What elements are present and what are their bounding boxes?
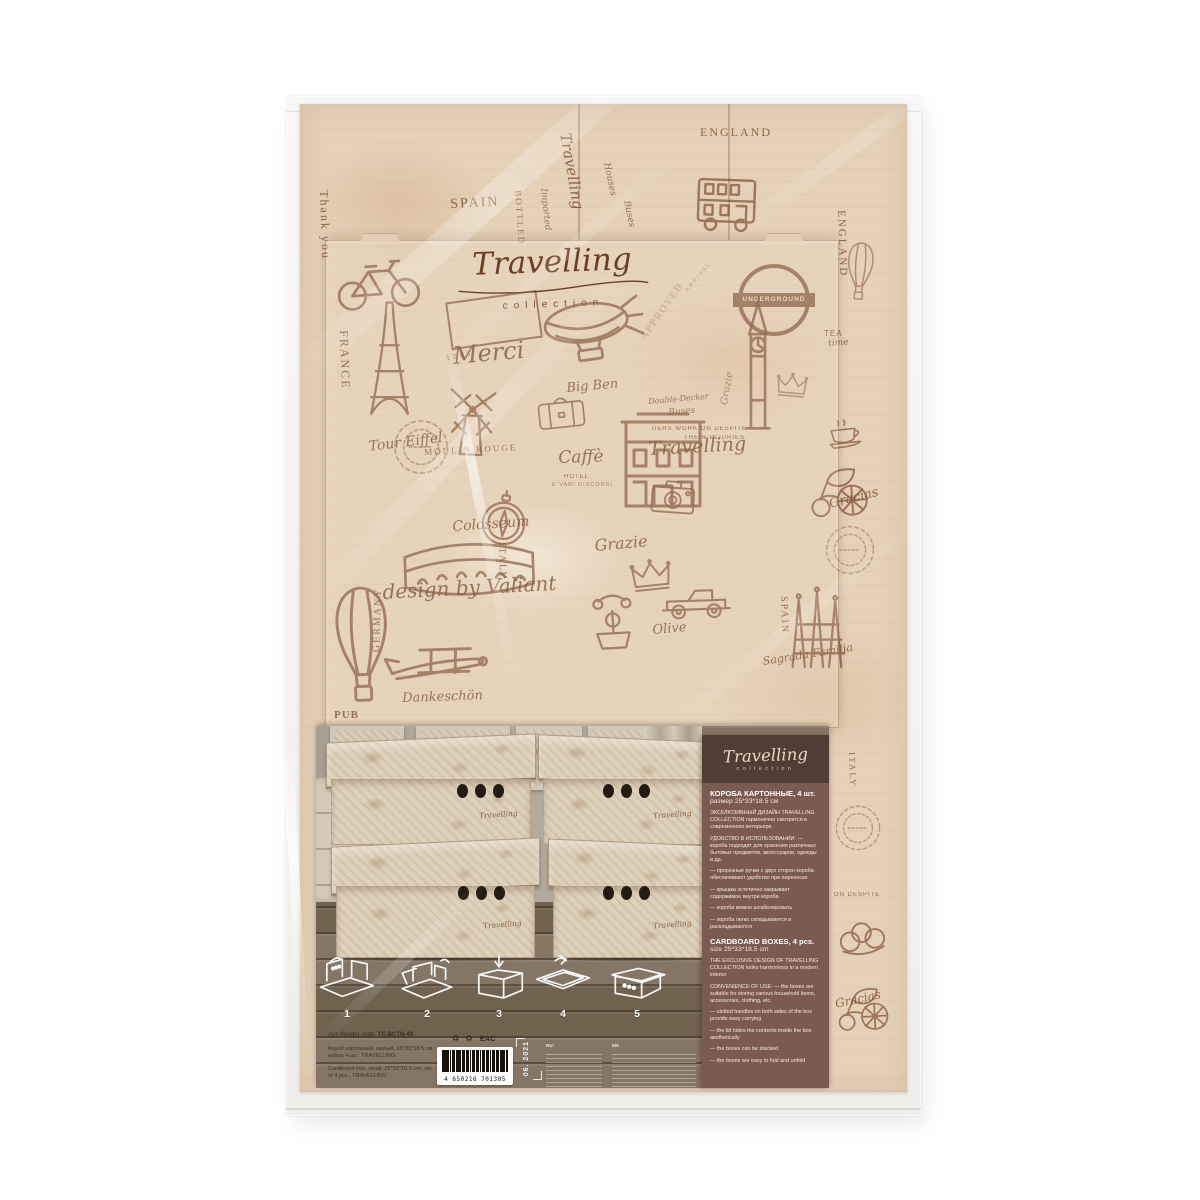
label-band: Travelling (316, 726, 829, 1088)
panel-paragraph: УДОБСТВО В ИСПОЛЬЗОВАНИИ: — короба подхо… (710, 836, 821, 864)
panel-body: КОРОБА КАРТОННЫЕ, 4 шт. размер 25*33*18.… (702, 783, 829, 1073)
handle-hole-icon (603, 784, 614, 798)
step-number: 3 (468, 1008, 530, 1020)
interior-photo-inset: Travelling (316, 726, 702, 961)
description-en: Cardboard box, small, 25*33*18.5 cm, set… (328, 1066, 434, 1081)
panel-paragraph: — короба можно штабелировать (710, 905, 821, 912)
handle-hole-icon (493, 784, 504, 798)
handle-hole-icon (639, 886, 650, 900)
fineprint-en: EN: (612, 1034, 696, 1090)
assembly-step-2-icon (396, 952, 458, 1002)
panel-paragraphs-en: THE EXCLUSIVE DESIGN OF TRAVELLING COLLE… (710, 958, 821, 1065)
box-brand-label: Travelling (483, 919, 522, 931)
cardboard-box: Travelling (543, 738, 702, 845)
assembly-step-4-icon (532, 952, 594, 1002)
box-brand-label: Travelling (653, 809, 692, 821)
fineprint-ru: RU: (546, 1034, 602, 1090)
vendor-code: TC-BCTN-4S (378, 1032, 414, 1038)
panel-paragraph: THE EXCLUSIVE DESIGN OF TRAVELLING COLLE… (710, 958, 821, 979)
pattern-word: Houses (601, 162, 617, 197)
pattern-word: ON DESPITE (834, 892, 880, 898)
panel-size-ru: размер 25*33*18.5 см (710, 798, 821, 806)
fineprint-text-lines (612, 1054, 696, 1090)
handle-holes (458, 886, 505, 900)
assembly-step-1: 1 (316, 952, 378, 1020)
cardboard-box: Travelling (336, 842, 535, 958)
pattern-word: ENGLAND (700, 126, 772, 138)
cardboard-box: Travelling (553, 842, 702, 958)
fineprint-ru-label: RU: (546, 1043, 554, 1048)
fold-seam (728, 104, 730, 240)
handle-hole-icon (476, 886, 487, 900)
handle-hole-icon (494, 886, 505, 900)
handle-tab (356, 233, 404, 242)
vendor-line: Арт./Vendor code: TC-BCTN-4S (328, 1032, 414, 1038)
assembly-step-2: 2 (396, 952, 458, 1020)
panel-paragraph: — короба легко складываются и раскладыва… (710, 917, 821, 931)
barcode-bars-icon (442, 1050, 508, 1072)
panel-paragraph: — the boxes can be stacked (710, 1046, 821, 1053)
step-number: 2 (396, 1008, 458, 1020)
plastic-package: Thank youSPAINTravellingBOTTLEDImportedH… (286, 96, 921, 1116)
panel-paragraph: CONVENIENCE OF USE: — the boxes are suit… (710, 984, 821, 1005)
plastic-bottom-fold (286, 1108, 921, 1110)
handle-hole-icon (621, 784, 632, 798)
panel-title-en: CARDBOARD BOXES, 4 pcs. (710, 937, 821, 946)
date-stamp-block: 06. 2021 (516, 1038, 542, 1080)
panel-brand-logo: Travelling collection (702, 735, 829, 783)
panel-paragraphs-ru: ЭКСКЛЮЗИВНЫЙ ДИЗАЙН TRAVELLING COLLECTIO… (710, 810, 821, 931)
patterned-cardboard-sheet: Thank youSPAINTravellingBOTTLEDImportedH… (300, 104, 907, 1092)
cardboard-box: Travelling (331, 738, 531, 845)
panel-paragraph: — slotted handles on both sides of the b… (710, 1009, 821, 1023)
barcode: 4 650216 701305 (437, 1047, 513, 1085)
pattern-word: BOTTLED (513, 190, 526, 245)
pattern-word: SPAIN (450, 195, 500, 212)
assembly-step-3: 3 (468, 952, 530, 1020)
product-packshot: Thank youSPAINTravellingBOTTLEDImportedH… (0, 0, 1200, 1200)
assembly-step-3-icon (468, 952, 530, 1002)
handle-holes (603, 784, 650, 798)
handle-hole-icon (458, 886, 469, 900)
panel-paragraph: — прорезные ручки с двух сторон короба о… (710, 868, 821, 882)
panel-brand-script: Travelling (723, 745, 808, 767)
pattern-word: Travelling (557, 132, 585, 211)
recycle-icon: ♻ ♻ (452, 1034, 475, 1043)
vendor-label: Арт./Vendor code: (328, 1032, 376, 1038)
pattern-word: ITALY (847, 752, 857, 788)
brand-script-text: Travelling (429, 240, 675, 285)
panel-paragraph: ЭКСКЛЮЗИВНЫЙ ДИЗАЙН TRAVELLING COLLECTIO… (710, 810, 821, 831)
assembly-step-4: 4 (532, 952, 594, 1020)
handle-tab (760, 233, 808, 242)
box-brand-label: Travelling (479, 809, 518, 821)
assembly-step-1-icon (316, 952, 378, 1002)
pattern-word: Imported (538, 188, 551, 231)
box-body: Travelling (336, 886, 535, 958)
panel-size-en: size 25*33*18.5 cm (710, 946, 821, 954)
info-panel: Travelling collection КОРОБА КАРТОННЫЕ, … (702, 735, 829, 1088)
handle-hole-icon (475, 784, 486, 798)
brand-logo: Travelling collection (429, 240, 676, 315)
assembly-step-5-icon (606, 952, 668, 1002)
certification-icons: ♻ ♻ EAC (452, 1034, 497, 1043)
panel-paragraph: — the boxes are easy to fold and unfold (710, 1058, 821, 1065)
panel-title-ru: КОРОБА КАРТОННЫЕ, 4 шт. (710, 789, 821, 798)
assembly-step-5: 5 (606, 952, 668, 1020)
fineprint-text-lines (546, 1054, 602, 1090)
eac-mark: EAC (479, 1033, 497, 1044)
barcode-number: 4 650216 701305 (437, 1076, 513, 1083)
handle-hole-icon (457, 784, 468, 798)
panel-paragraph: — крышка эстетично закрывает содержимое … (710, 887, 821, 901)
handle-holes (457, 784, 504, 798)
pretzel-icon (831, 912, 892, 961)
step-number: 4 (532, 1008, 594, 1020)
step-number: 1 (316, 1008, 378, 1020)
panel-brand-sub: collection (737, 766, 795, 772)
fineprint-en-label: EN: (612, 1043, 620, 1048)
box-brand-label: Travelling (653, 919, 692, 931)
handle-hole-icon (639, 784, 650, 798)
pattern-word: Buses (621, 200, 635, 228)
step-number: 5 (606, 1008, 668, 1020)
date-stamp: 06. 2021 (523, 1041, 530, 1076)
description-ru: Короб картонный, малый, 25*33*18.5 см, н… (328, 1046, 434, 1061)
panel-paragraph: — the lid hides the contents inside the … (710, 1028, 821, 1042)
handle-holes (603, 886, 650, 900)
handle-hole-icon (621, 886, 632, 900)
folded-box-panel (325, 240, 839, 728)
logo-flourish-icon (453, 280, 653, 297)
handle-hole-icon (603, 886, 614, 900)
stampcircle-icon (834, 804, 882, 852)
fold-seam (578, 104, 580, 240)
